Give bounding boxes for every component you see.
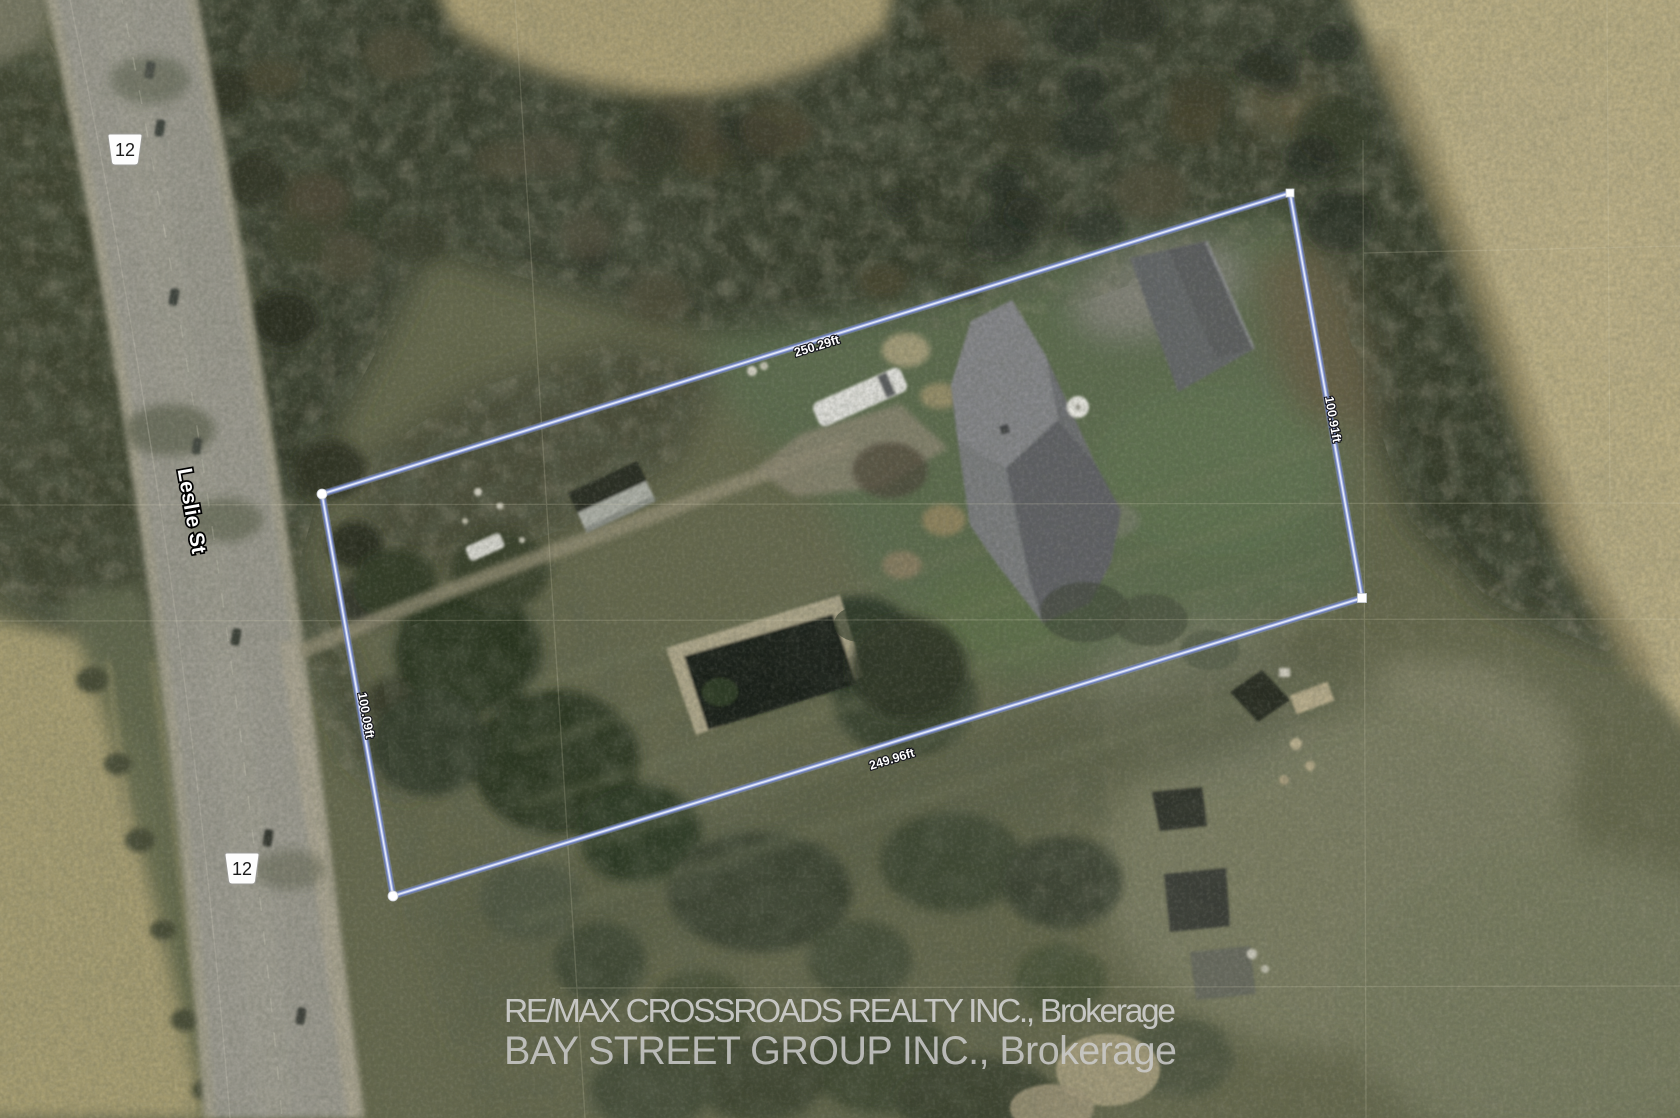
svg-text:12: 12 (232, 859, 252, 879)
svg-text:12: 12 (115, 140, 135, 160)
svg-text:BAY STREET GROUP INC., Brokera: BAY STREET GROUP INC., Brokerage (504, 1029, 1177, 1073)
svg-text:RE/MAX CROSSROADS REALTY INC.,: RE/MAX CROSSROADS REALTY INC., Brokerage (504, 993, 1176, 1030)
